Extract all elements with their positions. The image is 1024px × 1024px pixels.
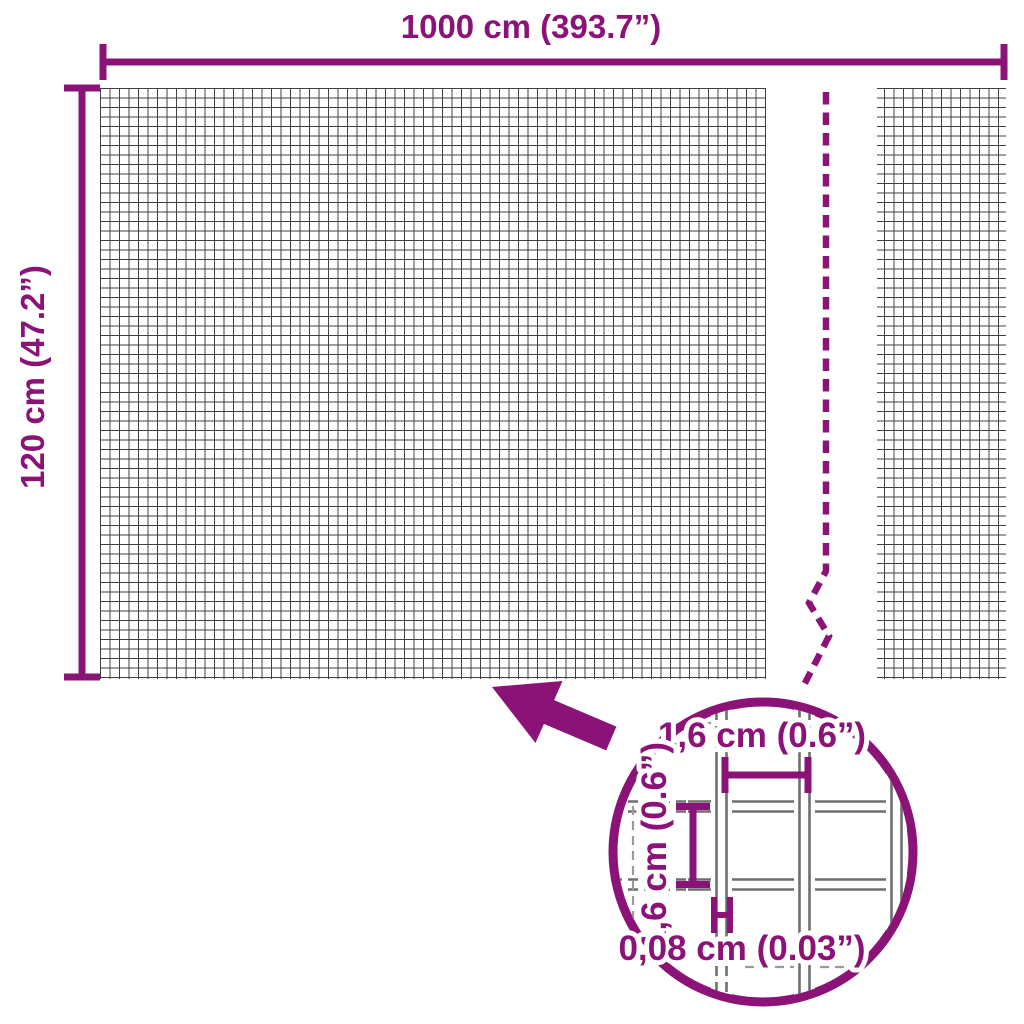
wire-thickness-label: 0,08 cm (0.03”) [618, 929, 865, 968]
pitch-horizontal-label: 1,6 cm (0.6”) [658, 716, 866, 755]
break-continuation-line [803, 92, 829, 687]
product-dimension-diagram: 1000 cm (393.7”) 120 cm (47.2”) [0, 0, 1024, 1024]
mesh-panel-main [100, 88, 766, 679]
mesh-panel-right [877, 88, 1006, 679]
diagram-canvas: 1000 cm (393.7”) 120 cm (47.2”) [0, 0, 1024, 1024]
width-dimension: 1000 cm (393.7”) [103, 8, 1004, 80]
width-dimension-label: 1000 cm (393.7”) [401, 8, 662, 45]
height-dimension: 120 cm (47.2”) [14, 88, 100, 677]
height-dimension-label: 120 cm (47.2”) [14, 265, 51, 489]
vertical-wire-3-body [886, 692, 907, 1012]
pitch-vertical-label: 1,6 cm (0.6”) [635, 742, 674, 950]
arrow-icon [492, 681, 616, 750]
